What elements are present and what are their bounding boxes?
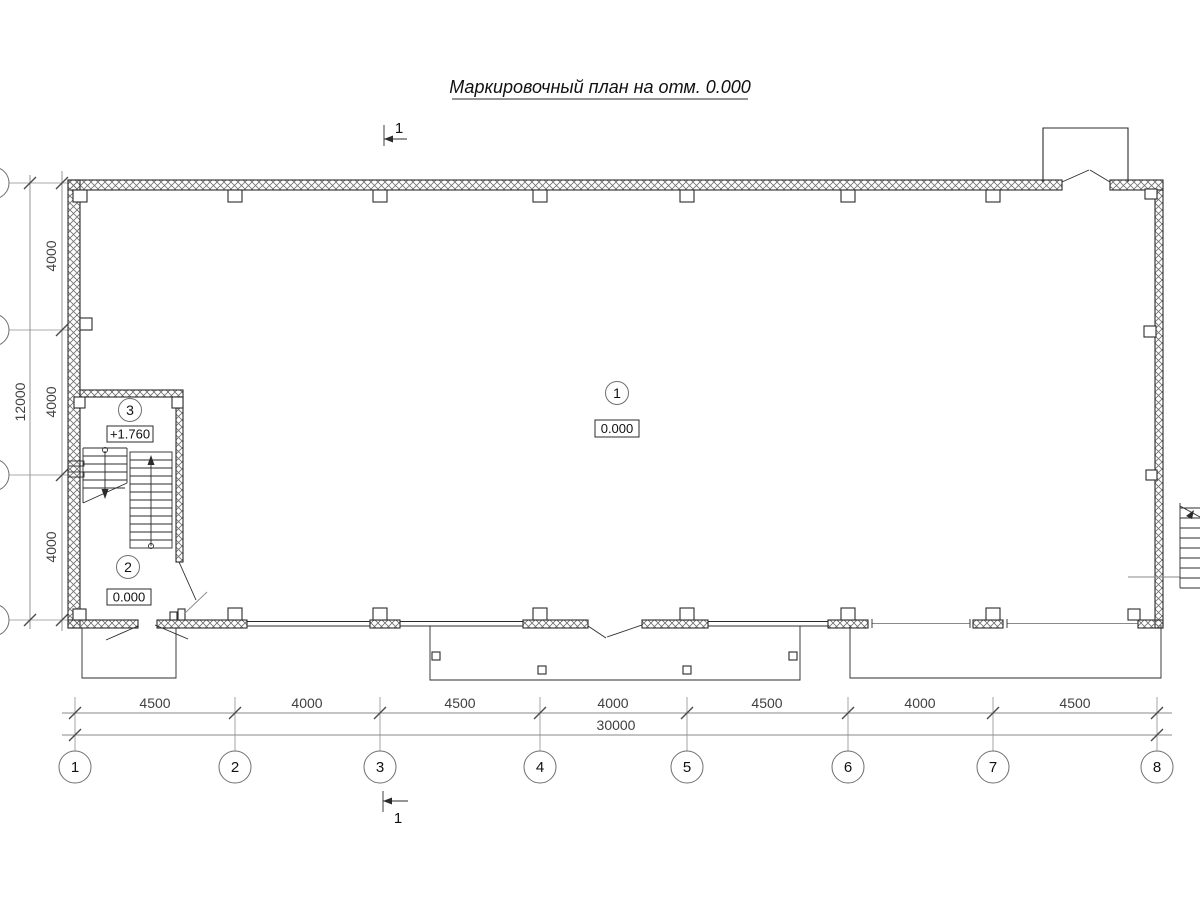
stairwell-wall-horizontal xyxy=(80,390,183,397)
main-door-leaf xyxy=(607,625,642,637)
column xyxy=(228,190,242,202)
column xyxy=(986,190,1000,202)
room-marker-2: 2 0.000 xyxy=(107,556,151,606)
column xyxy=(73,609,86,620)
porches xyxy=(82,625,1161,680)
dim-bottom-6: 4000 xyxy=(904,695,935,711)
bottom-wall-seg xyxy=(973,620,1003,628)
room-elevation: +1.760 xyxy=(110,427,150,442)
axis-circle-left-2 xyxy=(0,314,9,346)
bottom-axis-bubbles: 1 2 3 4 5 6 7 8 xyxy=(59,751,1173,783)
section-label-top: 1 xyxy=(395,120,403,137)
vestibule-door-leaf xyxy=(1062,170,1089,182)
dim-left-1: 4000 xyxy=(43,240,59,271)
section-mark-top: 1 xyxy=(384,120,407,146)
column xyxy=(533,608,547,620)
drawing-title: Маркировочный план на отм. 0.000 xyxy=(449,77,751,99)
bottom-wall-seg xyxy=(828,620,868,628)
platform-post xyxy=(538,666,546,674)
room-number: 2 xyxy=(124,559,132,575)
column xyxy=(1145,189,1157,199)
stairwell-wall-vertical xyxy=(176,397,183,562)
vestibule-door-leaf xyxy=(1090,170,1110,182)
top-wall-main xyxy=(68,180,1062,190)
column xyxy=(680,608,694,620)
right-platform xyxy=(850,625,1161,678)
dim-bottom-4: 4000 xyxy=(597,695,628,711)
column xyxy=(172,397,183,408)
left-porch xyxy=(82,628,176,678)
column xyxy=(373,608,387,620)
axis-label-1: 1 xyxy=(71,759,79,776)
room-number: 1 xyxy=(613,385,621,401)
axis-label-2: 2 xyxy=(231,759,239,776)
axis-label-8: 8 xyxy=(1153,759,1161,776)
right-wall xyxy=(1155,190,1163,628)
room-number: 3 xyxy=(126,402,134,418)
platform-post xyxy=(789,652,797,660)
doors xyxy=(106,170,1110,640)
dim-bottom-5: 4500 xyxy=(751,695,782,711)
platform-post xyxy=(683,666,691,674)
column xyxy=(1128,609,1140,620)
axis-label-3: 3 xyxy=(376,759,384,776)
axis-label-7: 7 xyxy=(989,759,997,776)
floor-plan-canvas: Маркировочный план на отм. 0.000 1 1 400… xyxy=(0,0,1200,900)
bottom-wall-seg xyxy=(1138,620,1163,628)
column xyxy=(1146,470,1157,480)
bottom-wall-seg xyxy=(642,620,708,628)
column xyxy=(986,608,1000,620)
column xyxy=(841,190,855,202)
main-door-leaf xyxy=(588,626,606,638)
axis-circle-left-3 xyxy=(0,459,9,491)
axis-label-4: 4 xyxy=(536,759,544,776)
axis-circle-left-4 xyxy=(0,604,9,636)
dim-bottom-total: 30000 xyxy=(597,717,636,733)
bottom-wall-seg xyxy=(370,620,400,628)
axis-label-5: 5 xyxy=(683,759,691,776)
dim-bottom-3: 4500 xyxy=(444,695,475,711)
dim-bottom-7: 4500 xyxy=(1059,695,1090,711)
axis-label-6: 6 xyxy=(844,759,852,776)
door-leader-line xyxy=(184,592,207,614)
door-frame xyxy=(170,612,177,620)
dim-bottom-2: 4000 xyxy=(291,695,322,711)
section-mark-bottom: 1 xyxy=(383,791,408,827)
dim-left-3: 4000 xyxy=(43,531,59,562)
bottom-wall-seg xyxy=(68,620,138,628)
vestibule-outline xyxy=(1043,128,1128,182)
dim-bottom-1: 4500 xyxy=(139,695,170,711)
column xyxy=(1144,326,1156,337)
drawing-sheet: Маркировочный план на отм. 0.000 1 1 400… xyxy=(0,0,1200,900)
column xyxy=(680,190,694,202)
column xyxy=(373,190,387,202)
room-elevation: 0.000 xyxy=(601,421,634,436)
bottom-wall-seg xyxy=(523,620,588,628)
room-marker-1: 1 0.000 xyxy=(595,382,639,438)
platform-post xyxy=(432,652,440,660)
column xyxy=(841,608,855,620)
bottom-wall-seg xyxy=(157,620,247,628)
dim-left-total: 12000 xyxy=(12,382,28,421)
exterior-stair-right xyxy=(1128,503,1200,588)
column xyxy=(73,190,87,202)
stairwell-inner-door-leaf xyxy=(179,562,196,600)
axis-circle-left-1 xyxy=(0,167,9,199)
stair-flight-down xyxy=(83,448,127,504)
column xyxy=(80,318,92,330)
dim-left-2: 4000 xyxy=(43,386,59,417)
room-elevation: 0.000 xyxy=(113,590,146,605)
column xyxy=(228,608,242,620)
column xyxy=(533,190,547,202)
page-title: Маркировочный план на отм. 0.000 xyxy=(449,77,751,97)
door-frame xyxy=(178,609,185,620)
bottom-dimension-system: 4500 4000 4500 4000 4500 4000 4500 30000 xyxy=(62,695,1172,751)
stair-flight-up xyxy=(130,452,172,549)
column xyxy=(74,397,85,408)
room-marker-3: 3 +1.760 xyxy=(107,399,153,443)
left-dimension-lines: 4000 4000 4000 12000 xyxy=(12,171,68,631)
section-label-bottom: 1 xyxy=(394,810,402,827)
